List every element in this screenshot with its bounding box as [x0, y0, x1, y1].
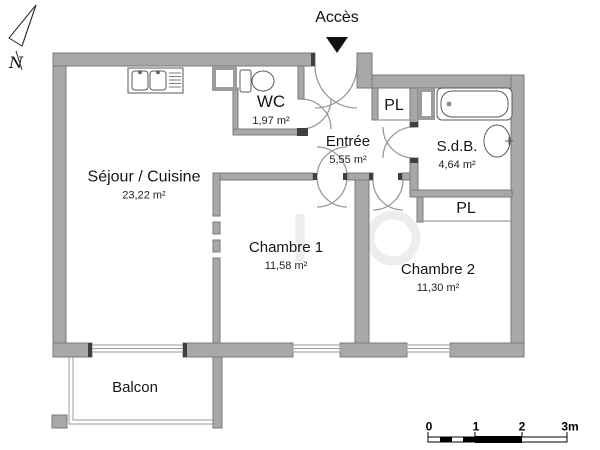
room-area: 5,55 m² [326, 154, 370, 166]
room-name: WC [252, 93, 289, 112]
room-name: Chambre 1 [249, 240, 323, 257]
room-area: 4,64 m² [437, 159, 478, 171]
room-label-sejour: Séjour / Cuisine 23,22 m² [88, 169, 201, 202]
wall-chambre1-chambre2 [355, 180, 369, 343]
floor-plan: Accès N Séjour / Cuisine 23,22 m² WC 1,9… [0, 0, 600, 450]
wall-balcony-corner [52, 415, 67, 428]
room-name: Balcon [112, 380, 158, 397]
bathtub-icon [437, 88, 512, 120]
wall-wc-bottom [233, 129, 300, 135]
closet-label-pl2: PL [456, 200, 476, 218]
wall-sejour-chambre1-d [213, 258, 220, 343]
access-arrow-icon [326, 37, 348, 53]
duct-kitchen [214, 68, 235, 89]
room-label-balcon: Balcon [112, 380, 158, 397]
wall-sejour-chambre1-c [213, 240, 220, 252]
wall-balcony-right [213, 357, 222, 428]
wall-bottom-a [53, 343, 92, 357]
room-label-chambre1: Chambre 1 11,58 m² [249, 240, 323, 272]
wall-pl2-left [417, 197, 423, 222]
room-area: 11,30 m² [401, 282, 475, 294]
washbasin-icon [484, 125, 513, 157]
north-label: N [9, 54, 23, 72]
wall-bottom-b [183, 343, 293, 357]
wall-chambre1-top [213, 173, 313, 180]
room-area: 11,58 m² [249, 260, 323, 272]
access-label: Accès [315, 9, 359, 27]
room-area: 23,22 m² [88, 189, 201, 201]
wall-pl1-left [372, 88, 378, 120]
room-name: S.d.B. [437, 139, 478, 156]
room-name: Entrée [326, 134, 370, 151]
closet-label-pl1: PL [384, 97, 404, 115]
wall-sdb-left-a [410, 88, 418, 127]
room-label-chambre2: Chambre 2 11,30 m² [401, 262, 475, 294]
floor-plan-drawing [0, 0, 600, 450]
wall-sejour-chambre1-b [213, 222, 220, 234]
room-label-entree: Entrée 5,55 m² [326, 134, 370, 166]
scale-tick-2: 2 [519, 420, 526, 433]
room-name: Chambre 2 [401, 262, 475, 279]
wall-top-right [372, 75, 524, 88]
scale-tick-3: 3m [561, 420, 578, 433]
scale-bar [428, 432, 567, 443]
duct-bathroom [420, 90, 433, 118]
room-area: 1,97 m² [252, 115, 289, 127]
wall-hall-right-stub [402, 173, 410, 180]
scale-tick-0: 0 [426, 420, 433, 433]
wall-bottom-c [340, 343, 407, 357]
wall-left [53, 53, 66, 357]
wall-bottom-d [450, 343, 524, 357]
room-label-wc: WC 1,97 m² [252, 93, 289, 127]
wall-wc-left [233, 88, 238, 134]
wall-right [511, 75, 524, 357]
room-name: Séjour / Cuisine [88, 169, 201, 187]
wall-top [53, 53, 315, 66]
toilet-icon [240, 70, 274, 92]
wall-wc-right [298, 66, 304, 99]
room-label-sdb: S.d.B. 4,64 m² [437, 139, 478, 171]
wall-entrance-stub [357, 53, 372, 88]
wall-sdb-bottom [410, 190, 512, 197]
wall-sejour-chambre1-a [213, 173, 220, 216]
scale-tick-1: 1 [473, 420, 480, 433]
kitchen-sink-icon [128, 68, 183, 93]
